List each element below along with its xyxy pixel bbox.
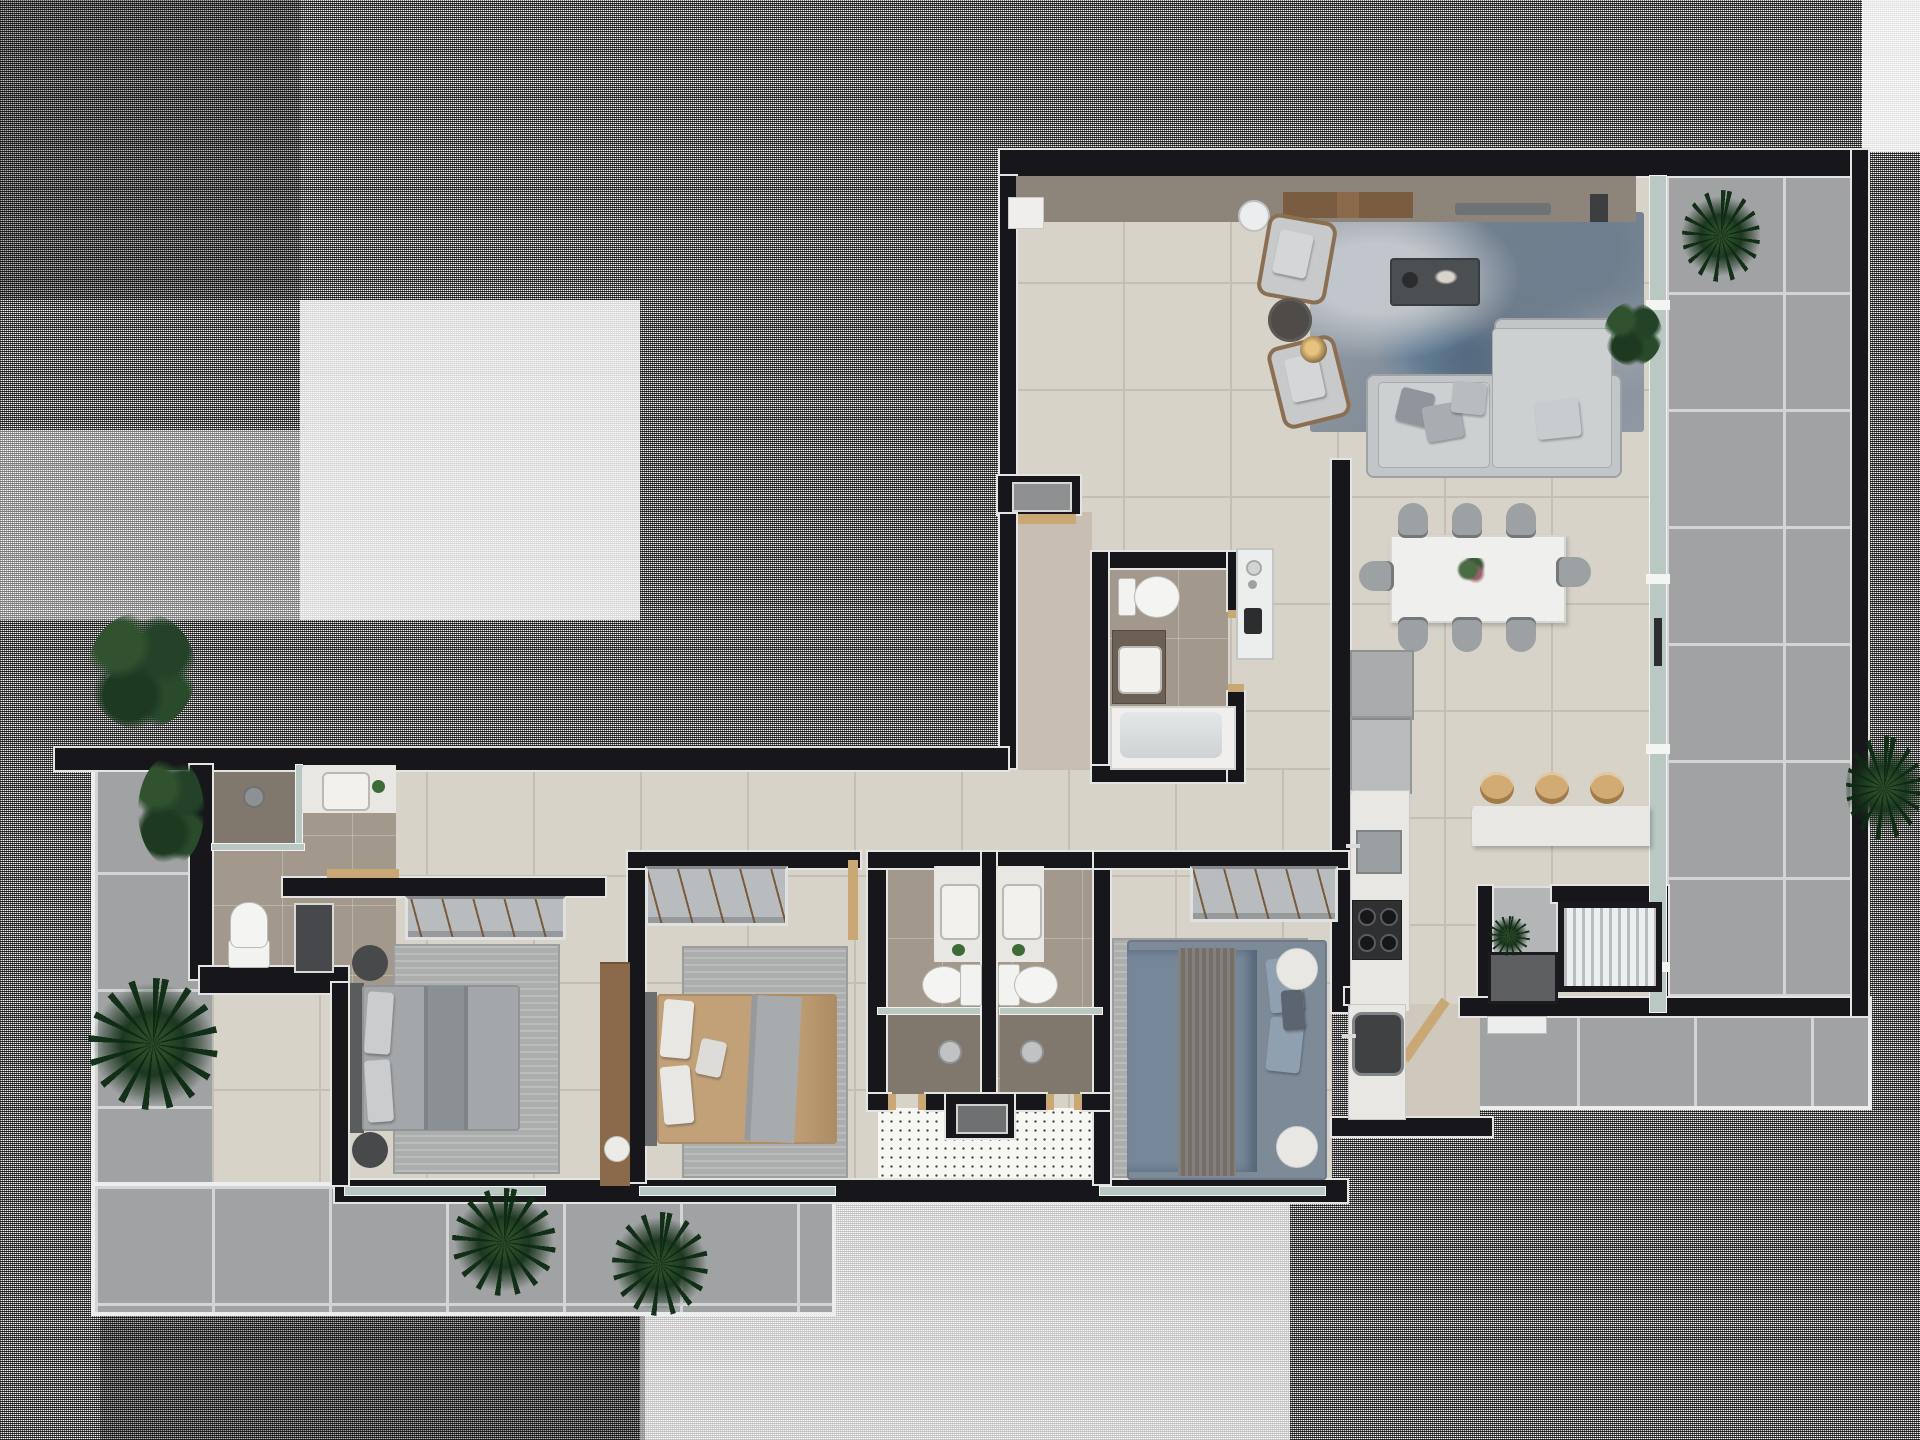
kitchen-tall-cabinet (1350, 650, 1414, 720)
oven-handle (1244, 608, 1262, 634)
powder-door-jamb (1228, 684, 1244, 692)
closet (1190, 866, 1338, 922)
toilet-bowl (230, 902, 268, 948)
palm-plant (452, 1188, 556, 1296)
floor-lamp-globe (1300, 336, 1327, 363)
toilet-bowl (1134, 576, 1180, 618)
entry-niche-mat (1012, 482, 1072, 512)
wall-bath-bottom-c (1082, 1094, 1110, 1110)
nightstand (1276, 948, 1318, 990)
shower-head (1020, 1040, 1044, 1064)
bed-headboard (645, 992, 657, 1146)
tv-console (1283, 192, 1413, 218)
service-bath-sink (322, 772, 370, 811)
burner (1380, 934, 1398, 952)
shower-floor-right (1000, 1014, 1102, 1094)
wardrobe (645, 866, 788, 926)
oven-knob (1246, 560, 1262, 576)
powder-sink (1118, 646, 1162, 694)
wall-bedroom-left-west (332, 983, 348, 1185)
dining-chair (1452, 503, 1482, 535)
bed-pillow (364, 1059, 394, 1123)
soundbar (1455, 203, 1551, 215)
wall-powder-top (1092, 552, 1244, 568)
bath-door-jamb (1046, 1094, 1054, 1110)
burner (1358, 908, 1376, 926)
sofa-pillow (1534, 398, 1582, 440)
entry-hall-floor (1016, 512, 1092, 768)
window-bedroom-middle (640, 1187, 835, 1195)
wall-bathrooms-divider (982, 852, 996, 1110)
bed-pillow (660, 1065, 695, 1125)
breakfast-bar (1472, 806, 1650, 846)
stool-white (604, 1136, 630, 1162)
utility-niche (1488, 952, 1558, 1004)
bathtub-basin (1120, 712, 1222, 758)
wall-bedroom1-2-divider (628, 852, 645, 1182)
dining-chair (1506, 620, 1536, 652)
speaker (1590, 194, 1608, 222)
wall-art (1008, 197, 1044, 229)
wall-kitchen-divider (1332, 460, 1350, 1012)
wall-bath-bottom-a (868, 1094, 890, 1110)
background-dark-block (0, 0, 300, 300)
sink (1002, 884, 1042, 940)
terrace-right (1666, 175, 1852, 1011)
toilet-bowl (1014, 966, 1058, 1004)
background-dark-block (100, 1310, 645, 1440)
sofa-seat-cushion (1492, 328, 1612, 468)
plant (88, 612, 196, 730)
burner (1380, 908, 1398, 926)
coffee-table-decor (1432, 268, 1460, 286)
nightstand (352, 945, 388, 981)
palm-plant (612, 1212, 708, 1316)
wc-door-leaf (294, 903, 334, 973)
bar-stool (1590, 772, 1624, 804)
bar-stool (1535, 772, 1569, 804)
wall-bedroom-right-west (1094, 852, 1110, 1184)
dining-chair (1398, 503, 1428, 535)
bath-door-jamb (1074, 1094, 1082, 1110)
entry-door-sill (1006, 514, 1076, 524)
vanity-plant (1012, 944, 1025, 956)
oven-knob (1248, 580, 1257, 589)
fridge (1350, 716, 1412, 794)
dining-chair (1359, 561, 1391, 591)
wardrobe (405, 896, 566, 940)
washer (1487, 1016, 1547, 1034)
bath-niche-inner (956, 1104, 1008, 1134)
service-shower-drain (243, 786, 265, 808)
bed-throw (1178, 948, 1236, 1176)
glass-mullion (1646, 744, 1670, 754)
utility-plant (1488, 916, 1530, 956)
ac-condenser (1558, 902, 1662, 992)
service-faucet (1342, 1034, 1356, 1038)
service-sink (1352, 1012, 1404, 1076)
shower-floor-left (878, 1014, 980, 1094)
burner (1358, 934, 1376, 952)
bath-door-jamb (888, 1094, 896, 1110)
bed-throw (424, 986, 468, 1130)
dining-chair (1506, 503, 1536, 535)
bedroom-middle-door-leaf (848, 860, 858, 940)
palm-plant (1682, 190, 1760, 282)
glass-mullion (1646, 574, 1670, 584)
palm-plant (88, 978, 218, 1110)
shower-glass (878, 1008, 980, 1014)
dining-chair (1398, 620, 1428, 652)
coffee-table-tray (1402, 272, 1418, 288)
shower-head (938, 1040, 962, 1064)
bed-throw (744, 995, 802, 1143)
bed-pillow (1281, 989, 1306, 1030)
wall-bedroom-left-top (283, 878, 605, 896)
service-shower-glass-h (212, 844, 304, 850)
wall-top-living (1000, 150, 1868, 176)
sofa-pillow (1450, 380, 1487, 415)
wall-bathrooms-left (868, 852, 886, 1110)
shower-glass (1000, 1008, 1102, 1014)
plant (138, 756, 204, 866)
wall-terrace-right-boundary (1852, 150, 1868, 1016)
window-bedroom-right (1100, 1187, 1325, 1195)
plant (1604, 302, 1662, 366)
vanity-plant (372, 780, 385, 793)
wall-powder-left (1092, 552, 1108, 782)
nightstand (352, 1132, 388, 1168)
kitchen-sink (1356, 830, 1402, 874)
nightstand (1276, 1126, 1318, 1168)
toilet-tank (960, 964, 982, 1006)
sink (940, 884, 980, 940)
sliding-door-handle (1654, 618, 1662, 666)
kitchen-faucet (1346, 844, 1360, 848)
dining-chair (1559, 557, 1591, 587)
bed-pillow (364, 991, 394, 1055)
background-light-block (300, 300, 640, 620)
dining-chair (1452, 620, 1482, 652)
desk-chair (1238, 200, 1270, 232)
corridor-shelf (327, 869, 399, 878)
bar-stool (1480, 772, 1514, 804)
palm-plant (1846, 736, 1920, 840)
background-light-column (1862, 0, 1920, 152)
wall-service-room-bottom (1332, 1118, 1492, 1136)
side-table (1268, 298, 1312, 342)
dining-centerpiece (1456, 558, 1486, 584)
wall-living-left-lower (1000, 514, 1016, 768)
bed-pillow (660, 999, 695, 1059)
bath-door-jamb (918, 1094, 926, 1110)
background-light-block (0, 430, 300, 620)
vanity-plant (952, 944, 965, 956)
